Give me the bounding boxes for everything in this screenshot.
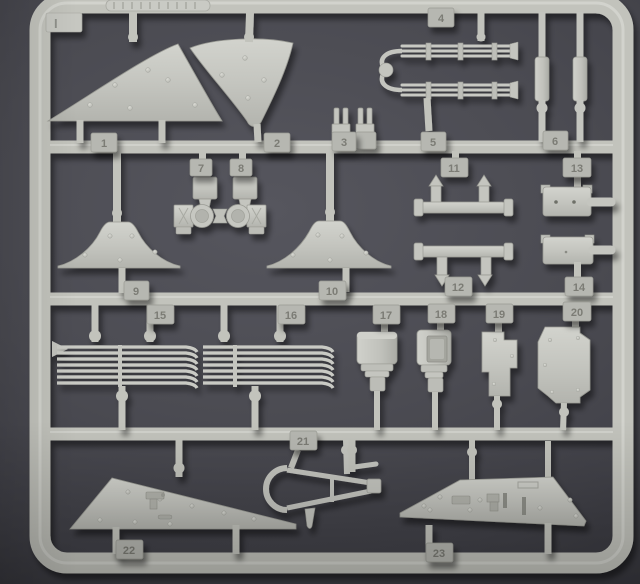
svg-text:23: 23 bbox=[433, 548, 445, 560]
svg-text:14: 14 bbox=[573, 282, 586, 294]
part-tag-7: 7 bbox=[190, 152, 212, 176]
svg-text:20: 20 bbox=[571, 307, 583, 319]
part-22-hull-panel bbox=[70, 439, 296, 554]
svg-text:9: 9 bbox=[133, 286, 139, 298]
svg-text:11: 11 bbox=[448, 163, 460, 175]
part-19-notched-plate bbox=[482, 321, 517, 430]
svg-text:6: 6 bbox=[552, 136, 558, 148]
part-15-grille bbox=[57, 304, 197, 430]
part-21-a-frame bbox=[266, 440, 381, 529]
svg-text:21: 21 bbox=[297, 436, 309, 448]
svg-text:1: 1 bbox=[101, 138, 107, 150]
part-tag-8: 8 bbox=[230, 152, 252, 176]
row-2-parts bbox=[58, 152, 611, 293]
sprue-letter-mark: I bbox=[54, 16, 58, 31]
gate-bulge bbox=[244, 32, 254, 42]
svg-text:7: 7 bbox=[198, 163, 204, 175]
sprue-letter-tab: I bbox=[46, 13, 82, 32]
svg-text:15: 15 bbox=[154, 310, 166, 322]
svg-text:12: 12 bbox=[452, 282, 464, 294]
svg-text:22: 22 bbox=[123, 545, 135, 557]
svg-text:17: 17 bbox=[380, 310, 392, 322]
part-tag-23: 23 bbox=[426, 543, 453, 562]
part-tag-6: 6 bbox=[543, 131, 568, 150]
part-14-box bbox=[541, 235, 611, 278]
svg-text:2: 2 bbox=[274, 138, 280, 150]
part-tag-14: 14 bbox=[565, 277, 593, 296]
svg-text:18: 18 bbox=[435, 309, 447, 321]
part-tag-11: 11 bbox=[441, 151, 468, 177]
svg-text:3: 3 bbox=[341, 137, 347, 149]
part-tag-21: 21 bbox=[290, 431, 317, 450]
part-tag-15: 15 bbox=[147, 305, 174, 324]
row-1-parts bbox=[48, 12, 587, 149]
part-tag-2: 2 bbox=[264, 133, 290, 152]
embossed-text-plate bbox=[106, 0, 210, 11]
svg-text:8: 8 bbox=[238, 163, 244, 175]
gate-bulge bbox=[128, 32, 138, 42]
part-tag-17: 17 bbox=[373, 305, 400, 324]
gate-bulge bbox=[325, 207, 335, 217]
part-11-axle-rod bbox=[414, 175, 513, 216]
svg-text:5: 5 bbox=[430, 137, 436, 149]
part-tag-22: 22 bbox=[116, 540, 143, 559]
part-23-hull-panel bbox=[400, 439, 586, 554]
small-lever-part bbox=[341, 440, 376, 474]
row-4-parts bbox=[70, 439, 586, 554]
part-tag-16: 16 bbox=[278, 305, 305, 324]
part-4-exhaust-manifold bbox=[379, 12, 518, 131]
part-17-canister bbox=[357, 322, 397, 430]
part-tag-20: 20 bbox=[563, 302, 591, 321]
sprue-gate bbox=[257, 124, 258, 142]
part-tag-19: 19 bbox=[486, 304, 513, 323]
part-16-grille bbox=[203, 304, 333, 430]
svg-text:4: 4 bbox=[438, 13, 445, 25]
axle-hub-assembly bbox=[174, 205, 266, 235]
part-5-rod bbox=[535, 12, 549, 142]
part-18-canister-recess bbox=[417, 321, 451, 430]
svg-text:13: 13 bbox=[571, 163, 583, 175]
part-tag-5: 5 bbox=[421, 132, 446, 151]
part-tag-18: 18 bbox=[428, 304, 455, 323]
part-tag-4: 4 bbox=[428, 8, 454, 27]
part-tag-12: 12 bbox=[445, 277, 472, 296]
svg-text:16: 16 bbox=[285, 310, 297, 322]
part-20-notched-plate bbox=[538, 319, 590, 430]
part-tag-3: 3 bbox=[332, 132, 356, 151]
part-tag-13: 13 bbox=[563, 151, 591, 177]
svg-text:10: 10 bbox=[326, 286, 338, 298]
part-tag-1: 1 bbox=[91, 133, 117, 152]
photo-background: I bbox=[0, 0, 640, 584]
part-tag-10: 10 bbox=[319, 281, 346, 300]
gate-bulge bbox=[112, 208, 122, 218]
sprue-photo: I bbox=[0, 0, 640, 584]
part-13-box bbox=[541, 175, 611, 216]
part-tag-9: 9 bbox=[124, 281, 149, 300]
part-6-rod bbox=[573, 12, 587, 142]
svg-text:19: 19 bbox=[493, 309, 505, 321]
